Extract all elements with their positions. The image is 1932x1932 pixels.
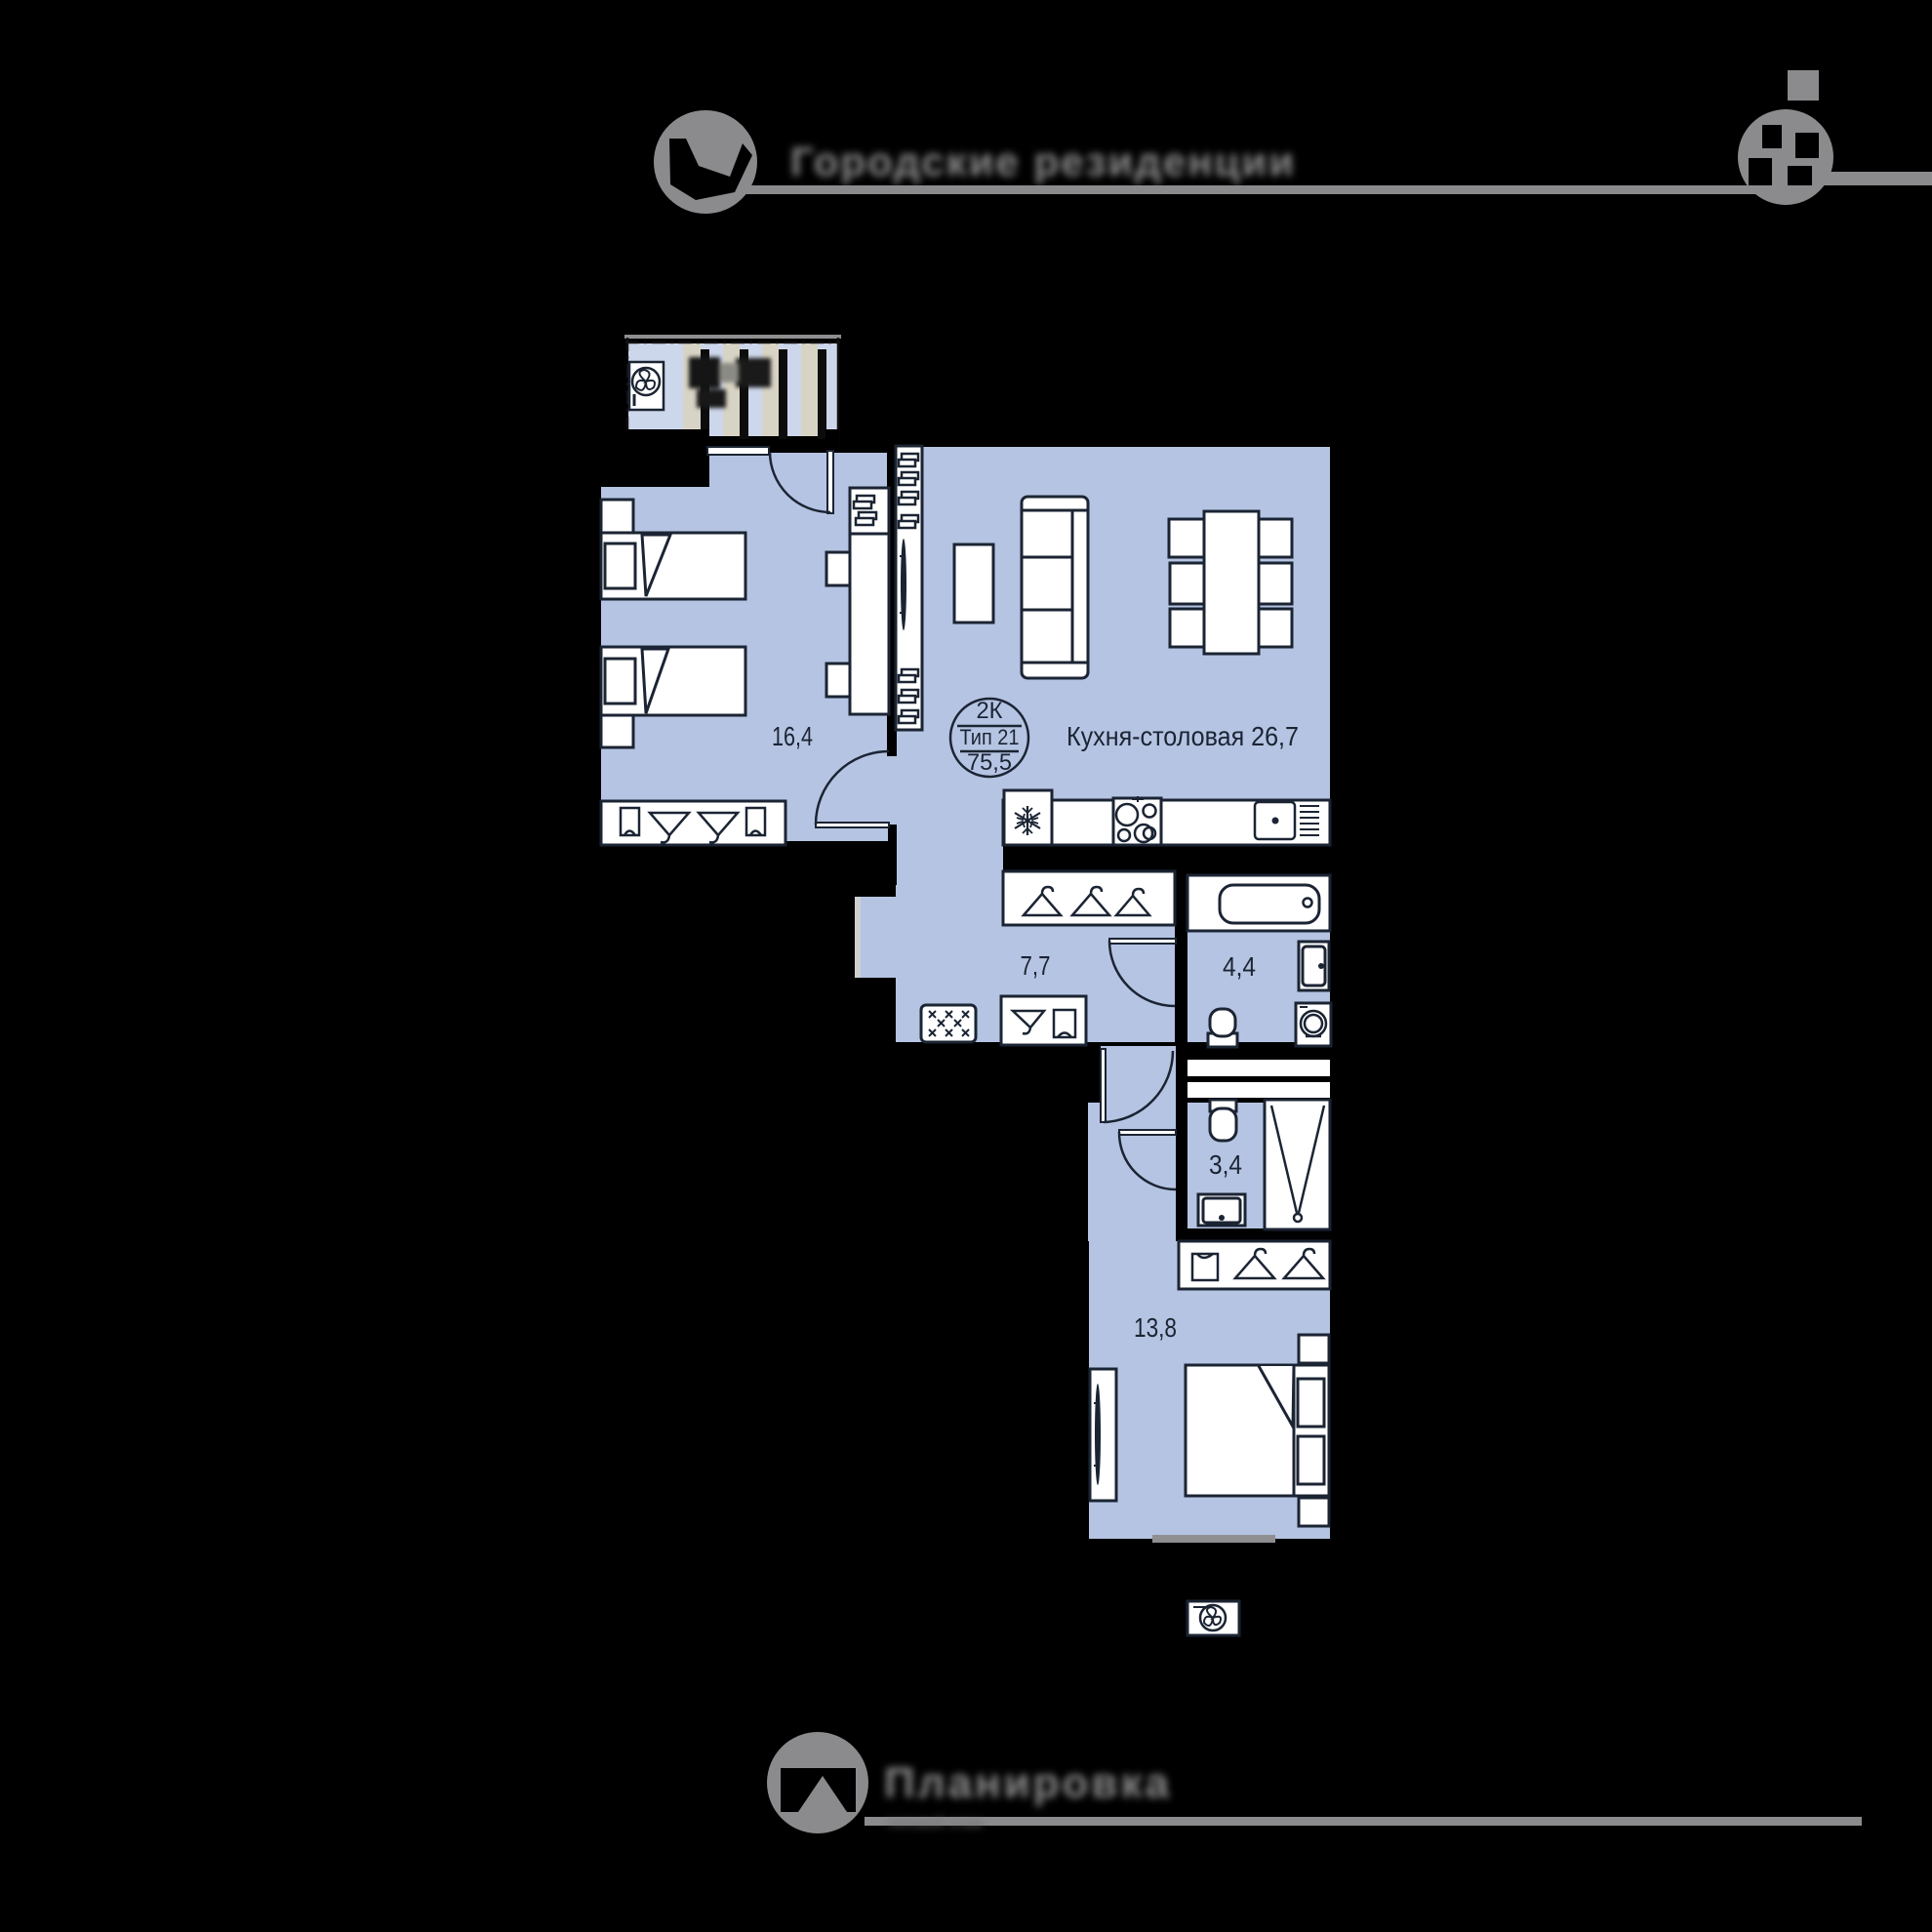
svg-text:3,4: 3,4: [1209, 1149, 1242, 1180]
svg-text:Планировка: Планировка: [884, 1759, 1172, 1807]
svg-text:75,5: 75,5: [967, 749, 1012, 776]
svg-text:Тип 21: Тип 21: [960, 725, 1020, 749]
svg-text:2К: 2К: [977, 698, 1003, 724]
svg-text:4,4: 4,4: [1223, 951, 1256, 982]
svg-text:7,7: 7,7: [1021, 950, 1051, 981]
svg-text:16,4: 16,4: [772, 721, 813, 751]
svg-text:13,8: 13,8: [1134, 1312, 1177, 1343]
svg-text:типовой этаж: типовой этаж: [886, 1815, 983, 1831]
svg-text:Кухня-столовая 26,7: Кухня-столовая 26,7: [1067, 721, 1299, 751]
svg-text:Городские резиденции: Городские резиденции: [790, 139, 1296, 184]
